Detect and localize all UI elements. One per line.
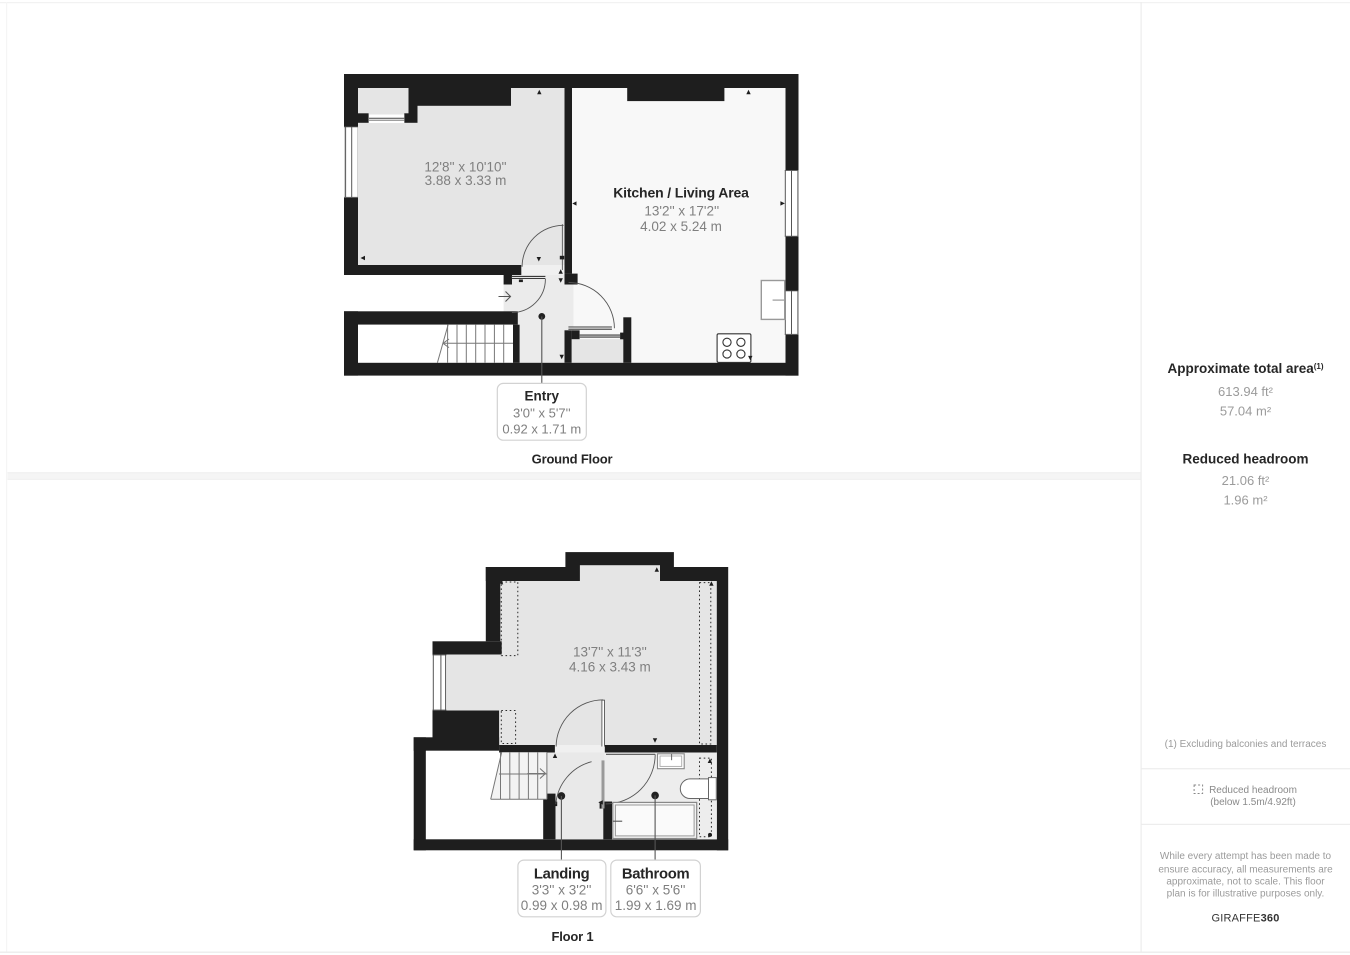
svg-text:3'3'' x 3'2'': 3'3'' x 3'2'' (532, 883, 592, 898)
svg-text:plan is for illustrative purpo: plan is for illustrative purposes only. (1167, 888, 1325, 899)
svg-text:0.99 x 0.98 m: 0.99 x 0.98 m (521, 898, 603, 913)
svg-text:Floor 1: Floor 1 (552, 929, 594, 944)
svg-text:Bathroom: Bathroom (622, 866, 690, 882)
svg-text:13'7'' x 11'3'': 13'7'' x 11'3'' (573, 645, 647, 660)
svg-text:6'6'' x 5'6'': 6'6'' x 5'6'' (626, 883, 686, 898)
svg-text:57.04 m²: 57.04 m² (1220, 404, 1272, 419)
svg-text:4.02 x 5.24 m: 4.02 x 5.24 m (640, 219, 722, 234)
svg-text:613.94 ft²: 613.94 ft² (1218, 384, 1274, 399)
svg-text:0.92 x 1.71 m: 0.92 x 1.71 m (502, 422, 581, 437)
svg-text:Approximate total area(1): Approximate total area(1) (1167, 361, 1323, 376)
svg-text:ensure accuracy, all measureme: ensure accuracy, all measurements are (1158, 864, 1333, 875)
svg-text:(1) Excluding balconies and te: (1) Excluding balconies and terraces (1165, 739, 1327, 750)
svg-text:Reduced headroom: Reduced headroom (1182, 451, 1308, 466)
svg-text:approximate, not to scale. Thi: approximate, not to scale. This floor (1166, 876, 1325, 887)
svg-text:Landing: Landing (534, 866, 590, 882)
svg-text:Reduced headroom: Reduced headroom (1209, 785, 1297, 796)
svg-text:Entry: Entry (525, 389, 560, 404)
svg-text:1.96 m²: 1.96 m² (1223, 493, 1268, 508)
svg-text:Kitchen / Living Area: Kitchen / Living Area (613, 185, 749, 201)
svg-text:3'0'' x 5'7'': 3'0'' x 5'7'' (513, 406, 571, 421)
svg-text:Ground Floor: Ground Floor (532, 451, 613, 466)
svg-text:4.16 x 3.43 m: 4.16 x 3.43 m (569, 659, 651, 674)
svg-text:(below 1.5m/4.92ft): (below 1.5m/4.92ft) (1210, 797, 1296, 808)
svg-text:3.88 x 3.33 m: 3.88 x 3.33 m (425, 173, 507, 188)
svg-text:While every attempt has been m: While every attempt has been made to (1160, 851, 1332, 862)
svg-text:GIRAFFE360: GIRAFFE360 (1211, 913, 1279, 925)
svg-text:13'2'' x 17'2'': 13'2'' x 17'2'' (644, 204, 719, 219)
svg-text:1.99 x 1.69 m: 1.99 x 1.69 m (615, 898, 697, 913)
svg-text:21.06 ft²: 21.06 ft² (1222, 473, 1270, 488)
